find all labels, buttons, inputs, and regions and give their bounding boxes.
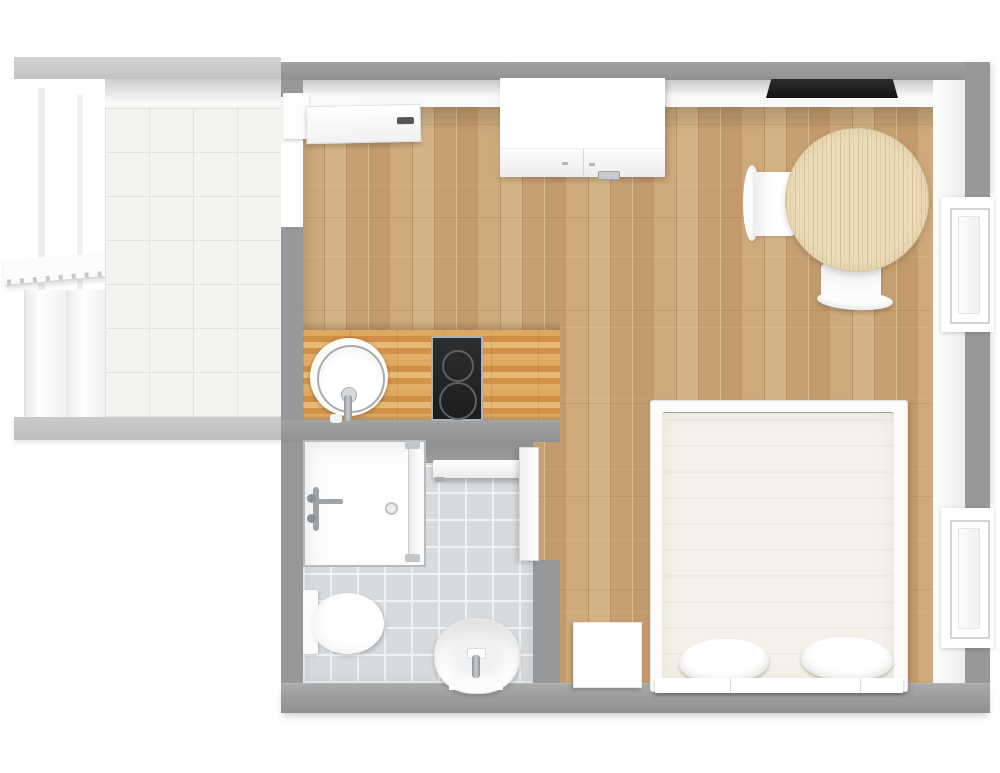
wardrobe-handle — [589, 163, 595, 166]
shower-drain — [385, 502, 398, 515]
landing-top-wall — [14, 57, 281, 79]
basin-faucet-stem — [472, 655, 480, 678]
footboard-seam — [730, 678, 731, 693]
stair-post — [67, 290, 106, 417]
wardrobe — [500, 78, 665, 177]
wardrobe-pull-handle — [598, 171, 620, 180]
footboard-seam — [860, 678, 861, 693]
wardrobe-door-seam — [583, 149, 584, 177]
shower-mixer-arm — [317, 499, 343, 504]
counter-shadow — [303, 321, 560, 330]
bathroom-door — [519, 447, 539, 561]
bathroom-left-wall — [281, 420, 303, 683]
door-handle — [397, 117, 414, 124]
washbasin-pedestal — [449, 676, 503, 690]
shower-hinge — [405, 441, 420, 449]
right-wall-lower — [965, 648, 990, 683]
window-lower-right — [941, 508, 994, 648]
right-wall-upper — [965, 62, 990, 197]
window-glass — [958, 528, 980, 629]
sink-soap-dish — [330, 414, 342, 423]
stair-railing — [3, 251, 115, 286]
sink-faucet-stem — [344, 395, 352, 421]
window-upper-right — [941, 197, 994, 332]
cooktop — [431, 336, 483, 421]
left-wall-mid — [281, 227, 303, 420]
right-wall-mid — [965, 332, 990, 508]
nightstand — [573, 622, 642, 688]
landing-tile-floor — [105, 107, 281, 417]
bathroom-right-wall — [533, 560, 560, 683]
towel-rail — [433, 460, 531, 478]
round-dining-table — [785, 128, 929, 272]
shower-mixer-bar — [313, 487, 319, 531]
window-glass — [958, 216, 980, 314]
landing-bottom-wall — [14, 417, 281, 440]
cooktop-burner-large — [439, 382, 477, 420]
railing-balusters — [7, 271, 111, 285]
shower-hinge — [405, 554, 420, 562]
landing-wall-face — [105, 79, 281, 109]
shower-door — [408, 444, 421, 559]
staircase-area — [8, 79, 105, 417]
stair-post — [24, 290, 67, 417]
wardrobe-handle — [562, 162, 568, 165]
shower-cabin — [303, 440, 426, 567]
wall-tv — [766, 79, 898, 98]
floor-plan — [0, 0, 1000, 773]
shower-knob — [307, 494, 316, 503]
entrance-door — [306, 104, 422, 144]
cooktop-burner-small — [442, 350, 474, 382]
toilet-bowl — [311, 593, 384, 654]
bed-footboard — [655, 678, 903, 693]
shower-knob — [307, 514, 316, 523]
bathroom-top-wall — [281, 420, 560, 442]
towel-rail-bracket — [435, 477, 444, 482]
